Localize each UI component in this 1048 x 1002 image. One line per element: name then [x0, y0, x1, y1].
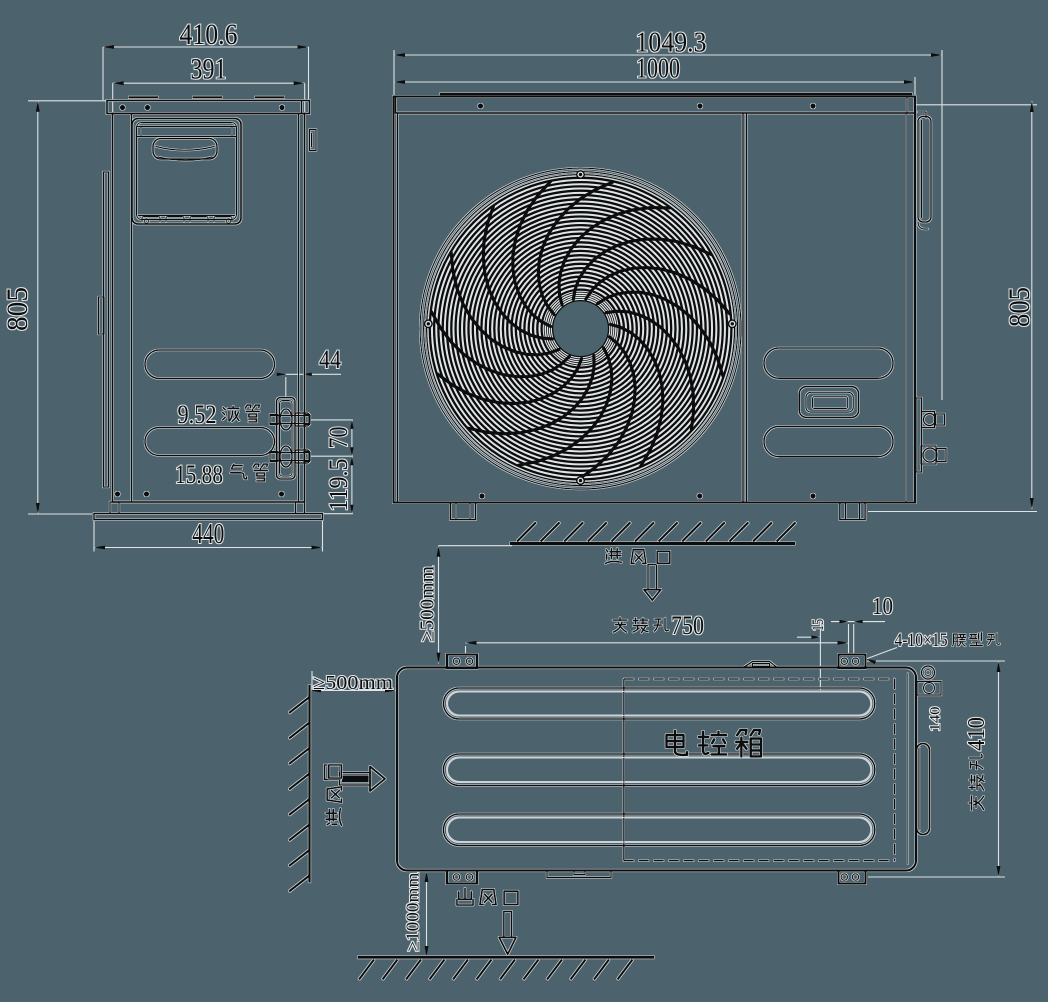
- svg-text:70: 70: [324, 427, 353, 449]
- svg-text:440: 440: [192, 519, 224, 550]
- svg-text:750: 750: [671, 611, 704, 640]
- svg-text:≥1000mm: ≥1000mm: [403, 873, 423, 952]
- svg-text:140: 140: [928, 707, 944, 732]
- svg-text:805: 805: [1, 287, 34, 331]
- svg-text:410.6: 410.6: [180, 18, 238, 51]
- svg-text:391: 391: [191, 53, 227, 86]
- svg-text:805: 805: [1003, 287, 1036, 327]
- svg-text:10: 10: [872, 594, 893, 620]
- svg-text:119.5: 119.5: [324, 459, 353, 512]
- svg-text:9.52: 9.52: [178, 400, 217, 429]
- svg-text:44: 44: [319, 345, 341, 374]
- svg-text:≥500mm: ≥500mm: [313, 672, 393, 694]
- svg-text:≥500mm: ≥500mm: [417, 566, 439, 642]
- svg-text:15.88: 15.88: [175, 460, 223, 489]
- svg-text:4-10×15: 4-10×15: [895, 630, 948, 651]
- svg-text:410: 410: [964, 717, 990, 751]
- svg-text:1000: 1000: [636, 53, 680, 85]
- svg-text:15: 15: [810, 619, 827, 631]
